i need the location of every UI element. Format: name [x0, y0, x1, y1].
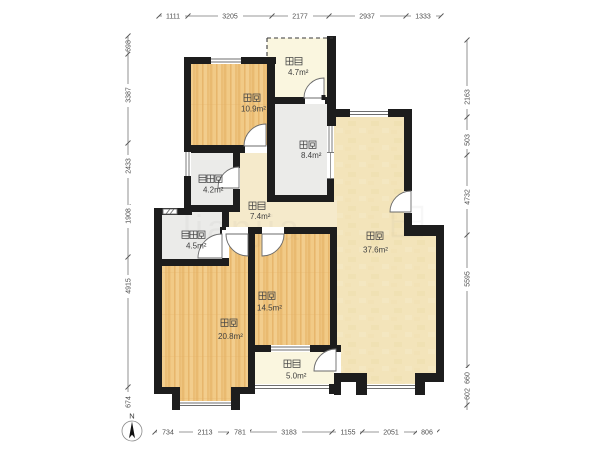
svg-text:10.9m²: 10.9m² [241, 105, 266, 114]
svg-text:2177: 2177 [292, 14, 308, 21]
svg-text:2051: 2051 [383, 430, 399, 437]
svg-text:4.5m²: 4.5m² [186, 242, 207, 251]
svg-text:781: 781 [234, 430, 246, 437]
svg-text:698: 698 [126, 40, 133, 52]
svg-text:660: 660 [465, 372, 472, 384]
svg-text:2937: 2937 [359, 14, 375, 21]
svg-text:806: 806 [421, 430, 433, 437]
svg-text:503: 503 [465, 134, 472, 146]
svg-text:14.5m²: 14.5m² [257, 304, 282, 313]
svg-text:37.6m²: 37.6m² [363, 246, 388, 255]
svg-text:3183: 3183 [281, 430, 297, 437]
svg-text:8.4m²: 8.4m² [301, 151, 322, 160]
svg-text:2433: 2433 [126, 158, 133, 174]
svg-text:4.2m²: 4.2m² [203, 186, 224, 195]
svg-text:1908: 1908 [126, 208, 133, 224]
svg-text:4915: 4915 [126, 278, 133, 294]
svg-text:4732: 4732 [465, 189, 472, 205]
svg-text:602: 602 [465, 388, 472, 400]
svg-text:1155: 1155 [340, 430, 355, 437]
svg-text:1333: 1333 [415, 14, 431, 21]
svg-text:2113: 2113 [197, 430, 212, 437]
svg-text:5595: 5595 [465, 271, 472, 287]
svg-text:3205: 3205 [222, 14, 238, 21]
svg-text:N: N [129, 412, 134, 421]
svg-text:5.0m²: 5.0m² [286, 372, 307, 381]
svg-text:1111: 1111 [166, 14, 180, 21]
svg-text:734: 734 [162, 430, 174, 437]
svg-text:674: 674 [126, 396, 133, 408]
svg-text:20.8m²: 20.8m² [218, 332, 243, 341]
svg-text:7.4m²: 7.4m² [250, 212, 271, 221]
svg-text:4.7m²: 4.7m² [288, 68, 309, 77]
svg-text:2163: 2163 [465, 89, 472, 105]
svg-text:3387: 3387 [126, 87, 133, 103]
